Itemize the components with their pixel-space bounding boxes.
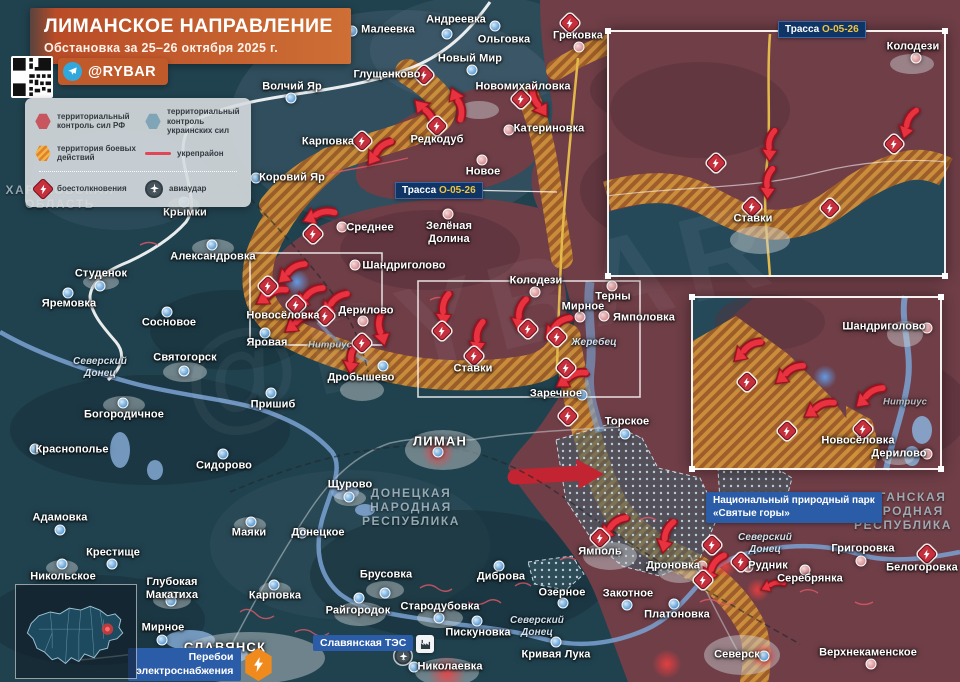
city-dot (179, 366, 190, 377)
city-dot (107, 559, 118, 570)
city-dot (378, 361, 389, 372)
legend-label: территориальный контроль сил РФ (57, 112, 137, 131)
city-dot (118, 398, 129, 409)
hex-blue-icon (145, 113, 161, 129)
city-dot (95, 281, 106, 292)
city-dot (246, 517, 257, 528)
trassa-road-number: О-05-26 (822, 24, 859, 35)
city-dot (350, 260, 361, 271)
title-banner: ЛИМАНСКОЕ НАПРАВЛЕНИЕ Обстановка за 25–2… (30, 8, 351, 64)
trassa-badge-main: Трасса О-05-26 (395, 182, 483, 199)
legend-label: боестолкновения (57, 184, 127, 194)
city-dot (162, 307, 173, 318)
rybar-channel-badge: @RYBAR (58, 58, 168, 85)
city-dot (166, 596, 177, 607)
city-dot (551, 637, 562, 648)
trassa-badge-inset: Трасса О-05-26 (778, 21, 866, 38)
legend-label: территориальный контроль украинских сил (167, 107, 241, 136)
tes-label: Славянская ТЭС (313, 635, 413, 651)
city-dot (55, 525, 66, 536)
city-dot (759, 651, 770, 662)
city-dot (354, 593, 365, 604)
city-dot (922, 323, 933, 334)
city-dot (57, 559, 68, 570)
city-dot (490, 21, 501, 32)
city-dot (607, 281, 618, 292)
city-dot (477, 155, 488, 166)
inset2-artwork (691, 294, 942, 470)
power-outage-badge: Перебои электроснабжения (128, 648, 273, 681)
legend-item-ua-control: территориальный контроль украинских сил (145, 107, 241, 136)
city-dot (530, 287, 541, 298)
city-dot (409, 662, 420, 673)
legend-item-clashes: боестолкновения (35, 181, 137, 197)
city-dot (337, 222, 348, 233)
legend-item-combat-zone: территория боевых действий (35, 144, 137, 163)
city-dot (467, 65, 478, 76)
city-dot (800, 565, 811, 576)
legend-label: укрепрайон (177, 149, 224, 159)
city-dot (922, 449, 933, 460)
trassa-road-number: О-05-26 (439, 185, 476, 196)
city-dot (297, 528, 308, 539)
map-legend: территориальный контроль сил РФ территор… (25, 98, 251, 207)
hex-red-icon (35, 113, 51, 129)
city-dot (599, 311, 610, 322)
city-dot (856, 556, 867, 567)
city-dot (669, 599, 680, 610)
tes-badge: Славянская ТЭС (313, 635, 434, 653)
city-dot (358, 316, 369, 327)
telegram-icon (63, 62, 82, 81)
city-dot (433, 447, 444, 458)
inset1-artwork (607, 30, 946, 277)
trassa-label: Трасса (785, 24, 819, 35)
city-dot (575, 312, 586, 323)
red-line-icon (145, 152, 171, 155)
city-dot (911, 53, 922, 64)
legend-item-airstrike: авиаудар (145, 180, 241, 198)
city-dot (620, 429, 631, 440)
city-dot (434, 613, 445, 624)
power-outage-label: Перебои электроснабжения (128, 648, 241, 681)
city-dot (157, 635, 168, 646)
channel-name: @RYBAR (88, 64, 156, 80)
city-dot (574, 42, 585, 53)
ukraine-locator-inset (15, 584, 137, 679)
airstrike-icon (145, 180, 163, 198)
legend-divider (39, 171, 237, 172)
nature-park-badge: Национальный природный парк «Святые горы… (706, 492, 882, 523)
legend-label: авиаудар (169, 184, 206, 194)
city-dot (472, 616, 483, 627)
factory-icon (416, 635, 434, 653)
city-dot (251, 173, 262, 184)
trassa-label: Трасса (402, 185, 436, 196)
city-dot (30, 444, 41, 455)
city-dot (622, 600, 633, 611)
city-dot (269, 580, 280, 591)
power-outage-icon (243, 648, 273, 681)
clash-icon (32, 178, 55, 201)
city-dot (558, 598, 569, 609)
city-dot (504, 125, 515, 136)
city-dot (344, 492, 355, 503)
legend-item-ru-control: территориальный контроль сил РФ (35, 112, 137, 131)
legend-label: территория боевых действий (57, 144, 137, 163)
page-title: ЛИМАНСКОЕ НАПРАВЛЕНИЕ (44, 15, 333, 38)
city-dot (494, 561, 505, 572)
city-dot (380, 588, 391, 599)
page-subtitle: Обстановка за 25–26 октября 2025 г. (44, 41, 333, 55)
city-dot (260, 328, 271, 339)
city-dot (442, 29, 453, 40)
city-dot (63, 288, 74, 299)
city-dot (443, 209, 454, 220)
map-page: @RYBAR МалеевкаАндреевкаОльговкаНовый Ми… (0, 0, 960, 682)
city-dot (266, 388, 277, 399)
legend-item-fortified: укрепрайон (145, 149, 241, 159)
city-dot (577, 390, 588, 401)
city-dot (286, 93, 297, 104)
city-dot (218, 449, 229, 460)
qr-code (11, 56, 53, 98)
city-dot (207, 240, 218, 251)
hex-hatch-icon (35, 145, 51, 161)
city-dot (866, 659, 877, 670)
ukraine-map-icon (22, 591, 130, 673)
